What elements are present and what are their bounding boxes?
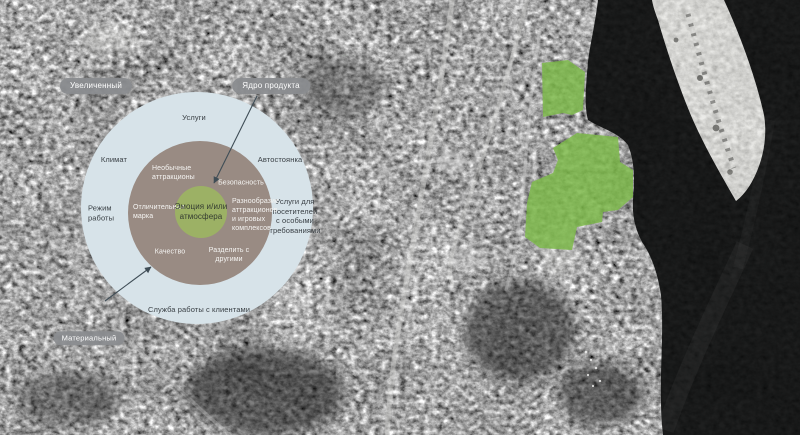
label-safety: Безопасность (218, 180, 264, 189)
slide-root: Услуги Климат Автостоянка Режим работы У… (0, 0, 800, 435)
label-climate: Климат (101, 155, 127, 165)
product-levels-diagram: Услуги Климат Автостоянка Режим работы У… (0, 0, 800, 435)
badge-material-product: Материальный (54, 331, 125, 345)
label-attraction-variety: Разнообразие аттракционов и игровых комп… (232, 198, 279, 234)
label-parking: Автостоянка (258, 155, 303, 165)
label-quality: Качество (155, 249, 185, 258)
label-customer-service: Служба работы с клиентами (148, 305, 250, 315)
label-working-hours: Режим работы (88, 203, 114, 222)
label-share-with-others: Разделить с другими (209, 247, 249, 265)
badge-augmented-product: Увеличенный (60, 78, 132, 94)
badge-product-core: Ядро продукта (232, 78, 310, 94)
label-emotion-atmosphere: Эмоция и/или атмосфера (175, 202, 228, 222)
label-unusual-attractions: Необычные аттракционы (152, 165, 195, 183)
label-services: Услуги (182, 113, 206, 123)
